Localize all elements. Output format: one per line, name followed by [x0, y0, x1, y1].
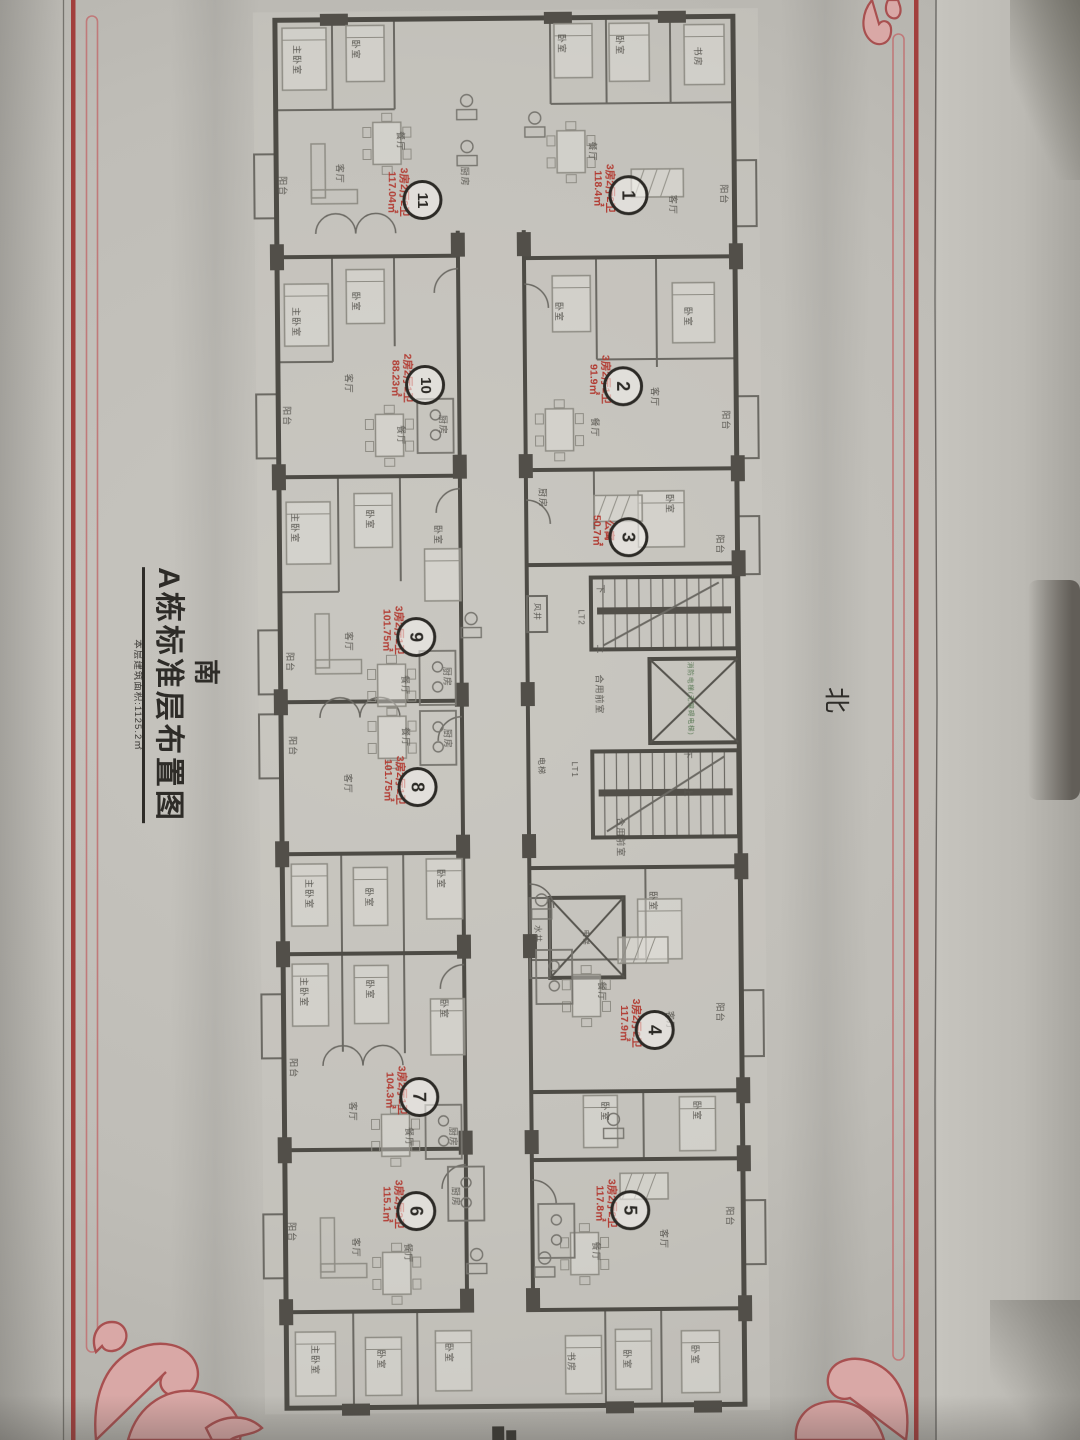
unit-area: 117.9㎡ [618, 999, 630, 1048]
unit-number: 9 [407, 632, 425, 642]
unit-area: 115.1㎡ [381, 1180, 393, 1229]
room-label: 阳台 [284, 652, 297, 672]
unit-area: 101.75㎡ [380, 606, 392, 655]
room-label: 卧室 [599, 1101, 612, 1121]
room-label: 卧室 [375, 1349, 388, 1369]
plan-title: A栋标准层布置图 [142, 567, 194, 823]
room-label: 主卧室 [291, 45, 304, 75]
room-label: 卧室 [435, 869, 448, 889]
unit-4-marker: 4 [635, 1010, 675, 1050]
shadow-bottom-edge [0, 1395, 1080, 1440]
room-label: 厨房 [437, 415, 450, 435]
photo-of-floor-plan: 主卧室卧室厨房客厅餐厅阳台卧室卧室书房餐厅客厅阳台主卧室卧室客厅餐厅厨房阳台卧室… [0, 0, 1080, 1440]
room-label: 卧室 [682, 307, 695, 327]
room-label: 卧室 [443, 1343, 456, 1363]
room-label: 餐厅 [590, 1241, 603, 1261]
room-label: 电梯 [581, 930, 591, 946]
unit-number: 8 [409, 782, 427, 792]
unit-7-marker: 7 [399, 1077, 439, 1117]
room-label: 下 [682, 750, 695, 760]
compass-south-label: 南 [190, 659, 227, 685]
room-label: 餐厅 [403, 1127, 416, 1147]
unit-9-marker: 9 [396, 617, 436, 657]
room-label: 餐厅 [596, 981, 609, 1001]
room-label: 卧室 [556, 34, 569, 54]
unit-number: 1 [619, 190, 637, 200]
room-label: 卧室 [691, 1101, 704, 1121]
room-label: 卧室 [363, 887, 376, 907]
room-label: 主卧室 [298, 977, 311, 1007]
room-label: 上 [682, 788, 695, 798]
unit-area: 91.9㎡ [587, 355, 599, 404]
unit-number: 4 [646, 1025, 664, 1035]
unit-area: 117.04㎡ [386, 168, 398, 217]
room-label: 卧室 [364, 979, 377, 999]
room-label: 卧室 [621, 1349, 634, 1369]
room-label: 客厅 [347, 1102, 360, 1122]
room-label: 餐厅 [402, 1243, 415, 1263]
unit-3-marker: 3 [608, 517, 648, 557]
room-label: 阳台 [281, 406, 294, 426]
room-label: 卧室 [664, 494, 677, 514]
unit-area: 104.3㎡ [384, 1066, 396, 1115]
unit-11-marker: 11 [402, 180, 442, 220]
room-label: 阳台 [714, 1002, 727, 1022]
unit-area: 117.8㎡ [594, 1179, 606, 1228]
room-label: LT1 [570, 762, 579, 778]
room-label: 消防电梯(无障碍电梯) [686, 662, 697, 736]
unit-area: 88.23㎡ [389, 354, 401, 403]
unit-8-marker: 8 [397, 767, 437, 807]
room-label: 卧室 [438, 999, 451, 1019]
room-label: 卧室 [350, 40, 363, 60]
room-label: 餐厅 [400, 727, 413, 747]
room-label: 阳台 [287, 1058, 300, 1078]
room-label: 客厅 [667, 195, 680, 215]
unit-number: 6 [407, 1206, 425, 1216]
compass-north-label: 北 [820, 687, 857, 713]
room-label: 餐厅 [399, 675, 412, 695]
room-label: 厨房 [447, 1127, 460, 1147]
unit-number: 10 [417, 377, 432, 394]
room-label: 阳台 [714, 534, 727, 554]
room-label: 卧室 [689, 1345, 702, 1365]
unit-area: 101.75㎡ [382, 756, 394, 805]
room-label: 上 [595, 644, 608, 654]
room-label: 合用前室 [614, 817, 627, 857]
room-label: 厨房 [441, 667, 454, 687]
room-label: 卧室 [614, 35, 627, 55]
room-label: 客厅 [649, 387, 662, 407]
unit-number: 5 [621, 1205, 639, 1215]
unit-number: 7 [410, 1092, 428, 1102]
unit-2-marker: 2 [603, 366, 643, 406]
room-label: 卧室 [432, 525, 445, 545]
room-label: 合用前室 [593, 674, 606, 714]
room-label: 阳台 [724, 1206, 737, 1226]
room-label: 客厅 [342, 374, 355, 394]
room-label: 客厅 [350, 1238, 363, 1258]
room-label: 主卧室 [289, 513, 302, 543]
room-label: 卧室 [647, 891, 660, 911]
room-label: 阳台 [720, 410, 733, 430]
room-label: 阳台 [277, 176, 290, 196]
room-label: 餐厅 [394, 131, 407, 151]
unit-number: 2 [614, 381, 632, 391]
room-label: 厨房 [459, 167, 472, 187]
room-label: 水井 [532, 925, 543, 943]
room-label: 厨房 [442, 729, 455, 749]
room-label: 客厅 [343, 632, 356, 652]
room-label: 主卧室 [309, 1345, 322, 1375]
room-label: 客厅 [658, 1229, 671, 1249]
room-label: 风井 [531, 603, 542, 621]
room-label: 卧室 [364, 509, 377, 529]
room-label: 主卧室 [290, 307, 303, 337]
room-label: 餐厅 [395, 425, 408, 445]
room-label: 阳台 [287, 736, 300, 756]
room-label: 书房 [565, 1352, 578, 1372]
room-label: 阳台 [286, 1222, 299, 1242]
unit-area: 118.4㎡ [592, 164, 604, 213]
room-label: 电梯 [536, 757, 547, 775]
room-label: 客厅 [342, 774, 355, 794]
room-label: 下 [594, 584, 607, 594]
room-label: LT2 [577, 609, 586, 625]
room-label: 阳台 [718, 184, 731, 204]
room-label: 餐厅 [586, 141, 599, 161]
room-label: 卧室 [350, 292, 363, 312]
unit-6-marker: 6 [396, 1191, 436, 1231]
unit-area: 50.7㎡ [591, 515, 603, 546]
unit-5-marker: 5 [610, 1190, 650, 1230]
unit-number: 11 [415, 192, 430, 208]
room-label: 卧室 [553, 302, 566, 322]
room-label: 客厅 [334, 164, 347, 184]
unit-1-marker: 1 [608, 175, 648, 215]
room-label: 主卧室 [303, 879, 316, 909]
room-label: 书房 [692, 47, 705, 67]
unit-10-marker: 10 [405, 365, 445, 405]
room-label: 厨房 [450, 1187, 463, 1207]
room-label: 厨房 [536, 488, 549, 508]
unit-number: 3 [619, 532, 637, 542]
room-label: 餐厅 [589, 417, 602, 437]
